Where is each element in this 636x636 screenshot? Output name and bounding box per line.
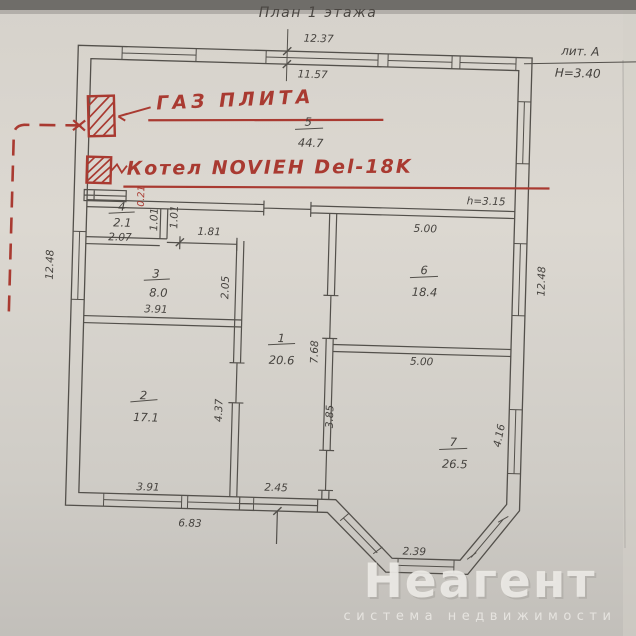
boiler-label: Котел NOVIEH Del-18K	[127, 156, 413, 180]
dim-room3-width: 3.91	[144, 303, 168, 316]
dim-top-inner: 11.57	[297, 68, 328, 81]
watermark: Неагент Неагент система недвижимости	[344, 554, 617, 624]
dim-hall-lower: 3.85	[324, 404, 337, 428]
room-5-number: 5	[304, 115, 312, 129]
room-7-area: 26.5	[442, 457, 468, 472]
room-5-area: 44.7	[298, 135, 325, 150]
room-6-area: 18.4	[412, 285, 438, 300]
dim-room6-width: 5.00	[413, 223, 437, 236]
room-7-number: 7	[450, 435, 458, 449]
dim-hall-opening: 1.81	[197, 226, 221, 239]
room-6-number: 6	[420, 263, 428, 277]
dim-hall-length: 7.68	[309, 340, 322, 364]
dim-left-side: 12.48	[44, 249, 57, 280]
dim-niche-b: 1.01	[168, 205, 181, 229]
liter-label: лит. А	[560, 44, 600, 59]
room-1-area: 20.6	[269, 353, 295, 368]
dim-bottom-left: 6.83	[178, 517, 202, 530]
dim-back-door: 2.45	[264, 482, 288, 495]
room-4-area: 2.1	[113, 215, 132, 230]
ceiling-height-label: h=3.15	[467, 195, 506, 208]
watermark-brand: Неагент	[363, 554, 596, 609]
room-3-area: 8.0	[149, 285, 168, 300]
building-height-label: H=3.40	[555, 66, 602, 81]
dim-niche-a: 1.01	[148, 208, 161, 232]
floor-plan-scan: План 1 этажа	[0, 0, 636, 636]
room-2-area: 17.1	[133, 410, 159, 425]
room-2-number: 2	[140, 388, 148, 402]
room-4-number: 4	[118, 199, 126, 213]
dim-room3-depth: 2.05	[219, 275, 232, 299]
dim-room2-width: 3.91	[136, 481, 160, 494]
dim-room4-width: 2.07	[108, 231, 132, 244]
dim-top-outer: 12.37	[303, 33, 334, 46]
watermark-tagline: система недвижимости	[344, 609, 617, 624]
dim-right-side: 12.48	[535, 266, 548, 297]
dim-room2-depth: 4.37	[213, 398, 226, 422]
room-1-number: 1	[277, 331, 285, 345]
dim-room7-width: 5.00	[410, 356, 434, 369]
gas-pipe-dimension: 0.21	[136, 185, 148, 206]
room-3-number: 3	[152, 266, 160, 280]
page-title: План 1 этажа	[259, 5, 378, 21]
